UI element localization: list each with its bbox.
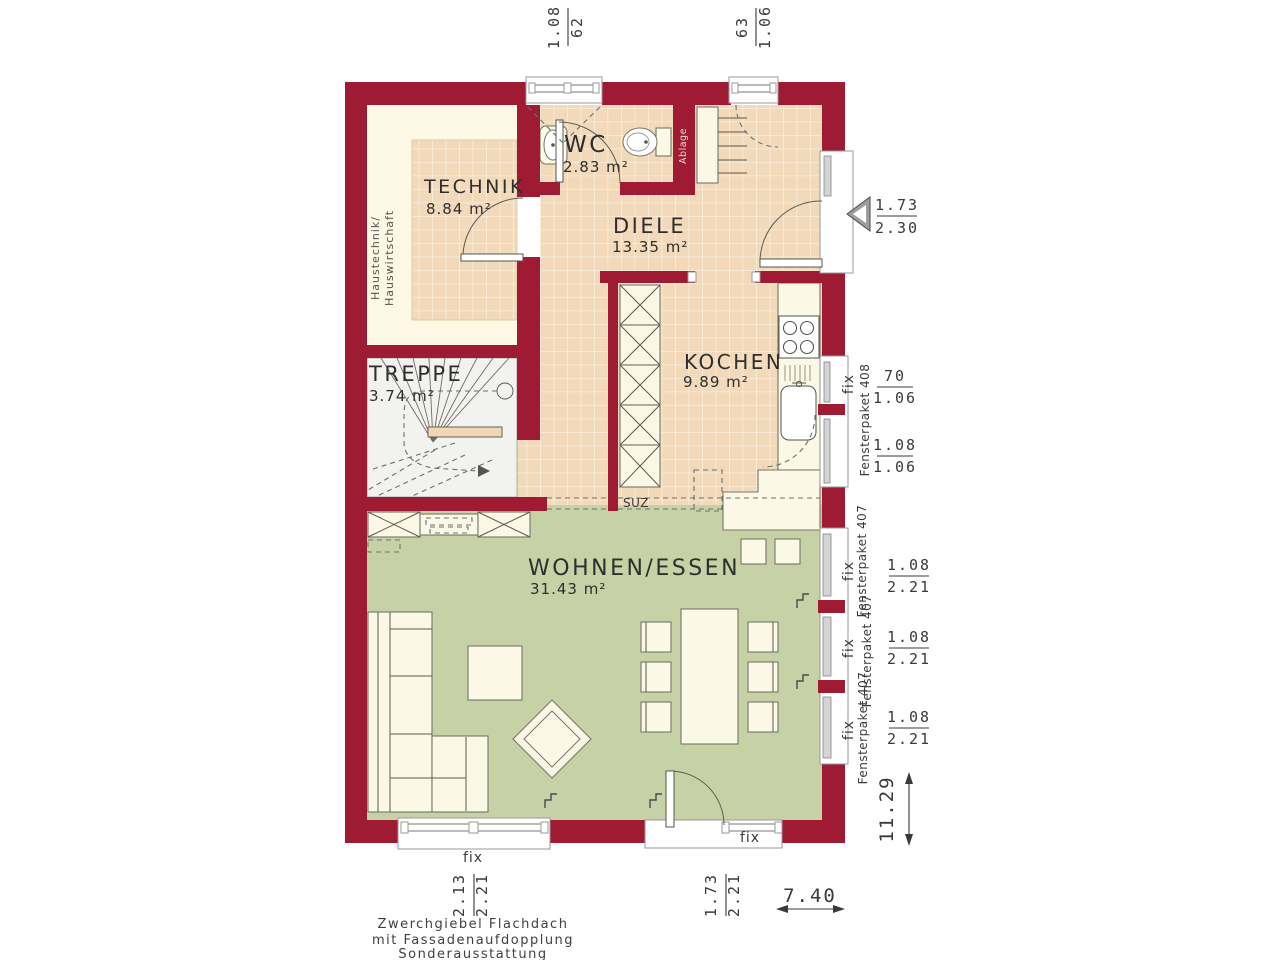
room-label-diele: DIELE <box>613 214 686 238</box>
dimensions-right: 1.73 2.30 fix Fensterpaket 408 70 1.06 1… <box>841 196 931 846</box>
dining-chairs-right <box>748 622 778 732</box>
dim-bottom-window-b: 2.21 <box>473 873 491 917</box>
dim-kitchen-window1-b: 1.06 <box>873 389 917 407</box>
room-label-treppe: TREPPE <box>368 362 463 386</box>
jamb-cap <box>752 272 760 282</box>
footer-line-2: mit Fassadenaufdopplung <box>372 933 574 948</box>
dim-bottom-window-a: 2.13 <box>450 873 468 917</box>
hauswirtschaft-label: Hauswirtschaft <box>383 210 396 306</box>
entrance-sidelight <box>824 156 831 196</box>
dim-entrance-b: 2.30 <box>875 219 919 237</box>
dining-chairs-left <box>641 622 671 732</box>
dim-bottom-door-b: 2.21 <box>725 873 743 917</box>
coat-rack-board <box>697 107 718 183</box>
technik-tile-inset <box>412 140 517 320</box>
room-area-treppe: 3.74 m² <box>369 387 435 405</box>
dining-set <box>641 609 778 744</box>
dim-entrance-a: 1.73 <box>875 196 919 214</box>
dim-top-window1-b: 62 <box>568 16 586 38</box>
entrance-door-leaf <box>760 259 822 267</box>
stair-passage-floor <box>517 440 540 500</box>
stair-landing <box>428 427 502 437</box>
window-mullion <box>818 404 845 415</box>
footer-line-3: Sonderausstattung <box>398 947 547 960</box>
footer-line-1: Zwerchgiebel Flachdach <box>378 917 569 932</box>
dim-top-window1-a: 1.08 <box>545 5 563 49</box>
arrow-up-icon <box>905 772 913 784</box>
dining-table <box>681 609 738 744</box>
footer-text: Zwerchgiebel Flachdach mit Fassadenaufdo… <box>372 917 574 960</box>
jamb-cap <box>688 272 696 282</box>
room-label-wohnen: WOHNEN/ESSEN <box>528 556 740 581</box>
fix-label-407-2: fix <box>841 638 857 658</box>
dim-top-window2-b: 1.06 <box>756 5 774 49</box>
dimensions-top: 1.08 62 63 1.06 <box>545 5 774 49</box>
toilet-icon <box>623 128 657 156</box>
room-area-kochen: 9.89 m² <box>683 373 749 391</box>
dim-overall-height: 11.29 <box>876 775 898 842</box>
arrow-down-icon <box>905 834 913 846</box>
fix-label-bottom-window: fix <box>463 850 483 866</box>
fix-label-407-3: fix <box>841 720 857 740</box>
window-mullion <box>818 600 845 613</box>
room-label-wc: WC <box>564 132 608 158</box>
dim-kitchen-window2-a: 1.08 <box>873 436 917 454</box>
dim-bottom-door-a: 1.73 <box>702 873 720 917</box>
tall-cabinet-column <box>620 285 660 487</box>
suz-label: SUZ <box>623 496 649 510</box>
room-area-technik: 8.84 m² <box>426 200 492 218</box>
dim-living-window1-a: 1.08 <box>887 556 931 574</box>
stool <box>741 539 766 564</box>
fensterpaket-407-label-3: Fensterpaket 407 <box>856 672 870 785</box>
room-area-wc: 2.83 m² <box>563 158 629 176</box>
arrow-left-icon <box>776 905 788 913</box>
haustechnik-label: Haustechnik/ <box>369 216 382 300</box>
dim-living-window3-b: 2.21 <box>887 730 931 748</box>
room-label-kochen: KOCHEN <box>684 350 783 374</box>
washbasin-drain <box>551 143 555 147</box>
fensterpaket-408-label: Fensterpaket 408 <box>858 364 872 477</box>
room-label-technik: TECHNIK <box>423 176 525 198</box>
dim-top-window2-a: 63 <box>733 16 751 38</box>
stool <box>775 539 800 564</box>
kitchen-sink-icon <box>781 386 816 440</box>
room-area-diele: 13.35 m² <box>612 238 688 256</box>
dim-kitchen-window1-a: 70 <box>884 367 906 385</box>
dim-overall-width: 7.40 <box>783 885 837 907</box>
coffee-table <box>468 646 522 700</box>
toilet-tank <box>656 128 671 156</box>
dim-living-window2-a: 1.08 <box>887 628 931 646</box>
room-area-wohnen: 31.43 m² <box>530 580 606 598</box>
terrace-door-leaf <box>666 771 674 827</box>
ablage-label: Ablage <box>678 128 689 164</box>
fix-label-408: fix <box>841 374 857 394</box>
kitchen-counter <box>778 283 820 470</box>
floor-plan-svg: TECHNIK 8.84 m² WC 2.83 m² DIELE 13.35 m… <box>0 0 1280 960</box>
dim-living-window2-b: 2.21 <box>887 650 931 668</box>
dim-kitchen-window2-b: 1.06 <box>873 458 917 476</box>
arrow-right-icon <box>833 905 845 913</box>
floor-plan-page: TECHNIK 8.84 m² WC 2.83 m² DIELE 13.35 m… <box>0 0 1280 960</box>
dim-living-window3-a: 1.08 <box>887 708 931 726</box>
fix-label-terrace: fix <box>740 830 760 846</box>
dim-living-window1-b: 2.21 <box>887 578 931 596</box>
window-mullion <box>818 680 845 693</box>
toilet-drain <box>644 140 648 144</box>
bottom-window <box>398 818 550 849</box>
